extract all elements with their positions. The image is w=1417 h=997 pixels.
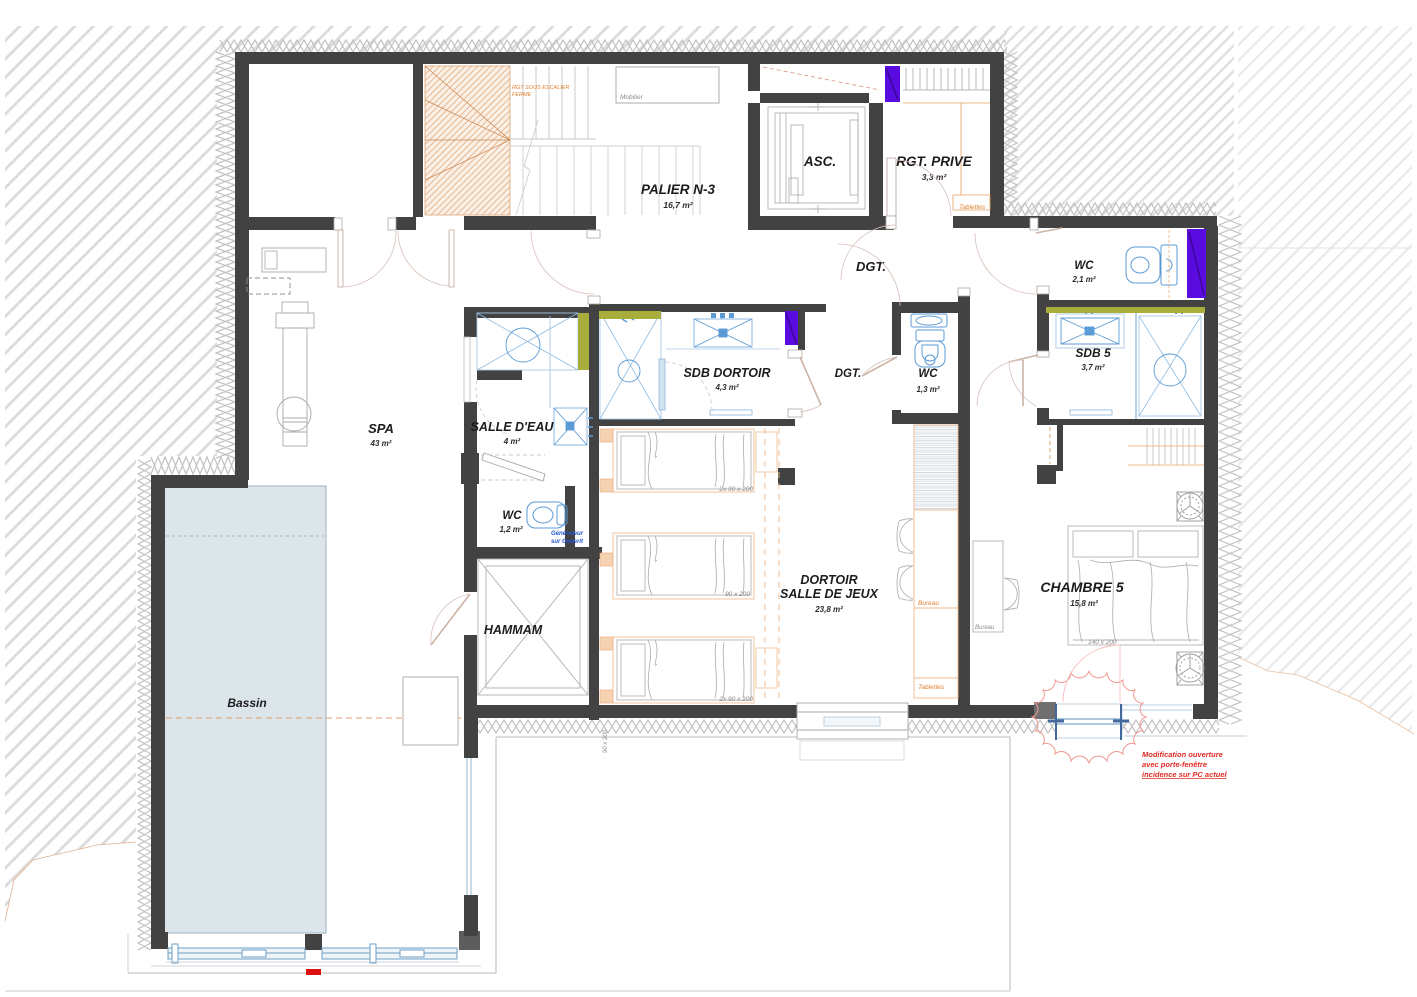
svg-text:SDB DORTOIR: SDB DORTOIR — [683, 366, 770, 380]
svg-text:90 x 200: 90 x 200 — [603, 729, 609, 753]
svg-text:2,1 m²: 2,1 m² — [1071, 275, 1095, 284]
svg-text:HAMMAM: HAMMAM — [484, 623, 543, 637]
svg-text:SPA: SPA — [368, 421, 394, 436]
svg-text:90 x 200: 90 x 200 — [725, 591, 750, 598]
svg-text:WC: WC — [1074, 260, 1094, 272]
svg-text:sur Geberit: sur Geberit — [551, 539, 584, 545]
svg-text:SDB 5: SDB 5 — [1075, 346, 1111, 360]
svg-text:SALLE DE JEUX: SALLE DE JEUX — [780, 587, 879, 601]
svg-text:WC: WC — [918, 368, 938, 380]
svg-text:16,7 m²: 16,7 m² — [663, 200, 693, 210]
svg-text:DORTOIR: DORTOIR — [800, 573, 857, 587]
svg-text:2x 90 x 200: 2x 90 x 200 — [718, 696, 753, 703]
svg-text:Modification ouverture: Modification ouverture — [1142, 750, 1223, 759]
svg-text:Bassin: Bassin — [227, 696, 266, 710]
svg-text:15,8 m²: 15,8 m² — [1070, 599, 1098, 608]
svg-text:RGT SOUS ESCALIER: RGT SOUS ESCALIER — [512, 85, 569, 91]
svg-text:Mobilier: Mobilier — [620, 94, 644, 101]
svg-text:43 m²: 43 m² — [370, 439, 392, 448]
svg-text:PALIER N-3: PALIER N-3 — [641, 182, 715, 197]
svg-text:DGT.: DGT. — [856, 259, 886, 274]
svg-text:Bureau: Bureau — [918, 600, 939, 607]
svg-text:Bureau: Bureau — [975, 625, 995, 631]
svg-text:ASC.: ASC. — [803, 154, 836, 169]
svg-text:Générateur: Générateur — [551, 531, 584, 537]
svg-text:1,3 m²: 1,3 m² — [916, 385, 939, 394]
svg-text:incidence sur PC actuel: incidence sur PC actuel — [1142, 770, 1228, 779]
svg-text:avec porte-fenêtre: avec porte-fenêtre — [1142, 760, 1207, 769]
svg-text:1,2 m²: 1,2 m² — [499, 525, 522, 534]
svg-text:4 m²: 4 m² — [503, 437, 521, 446]
svg-text:FERME: FERME — [512, 92, 532, 98]
svg-text:Tablettes: Tablettes — [959, 204, 986, 211]
svg-text:SALLE D'EAU: SALLE D'EAU — [471, 420, 555, 434]
svg-text:2x 90 x 200: 2x 90 x 200 — [718, 486, 753, 493]
svg-text:CHAMBRE 5: CHAMBRE 5 — [1040, 579, 1123, 595]
svg-text:WC: WC — [502, 510, 522, 522]
svg-text:140 x 200: 140 x 200 — [1088, 639, 1117, 646]
svg-text:3,7 m²: 3,7 m² — [1081, 363, 1104, 372]
svg-text:DGT.: DGT. — [835, 368, 862, 380]
svg-text:Tablettes: Tablettes — [918, 684, 945, 691]
svg-text:4,3 m²: 4,3 m² — [714, 383, 738, 392]
svg-text:23,8 m²: 23,8 m² — [814, 605, 843, 614]
